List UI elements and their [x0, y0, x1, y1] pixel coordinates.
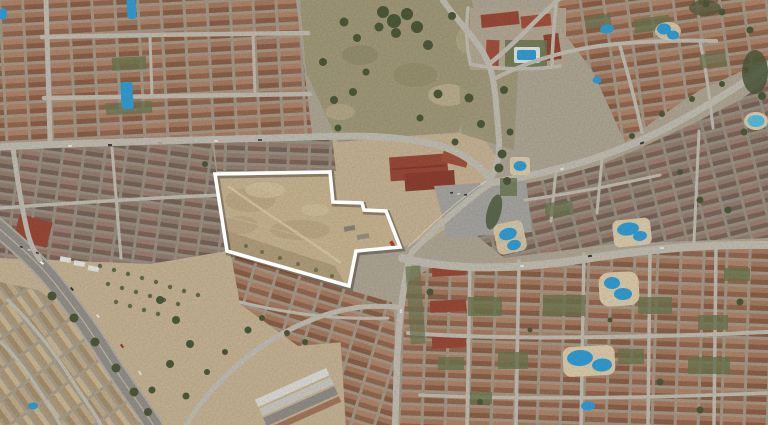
satellite-map	[0, 0, 768, 425]
